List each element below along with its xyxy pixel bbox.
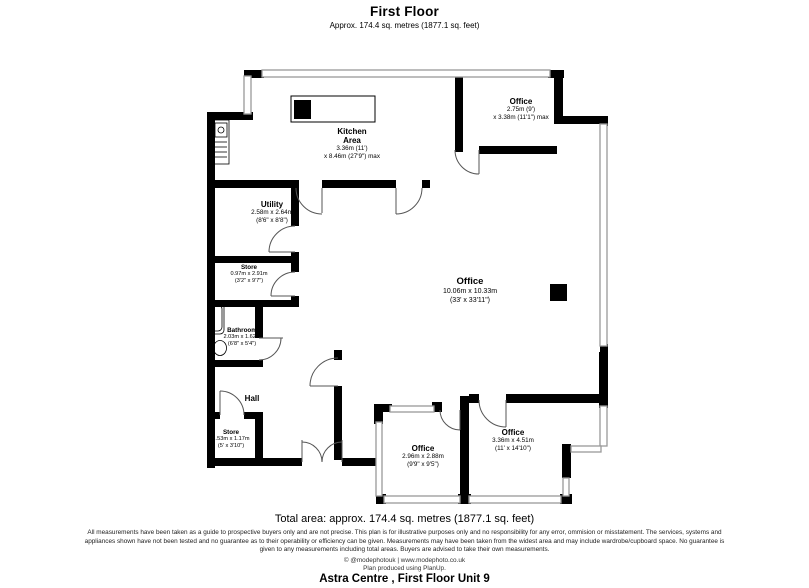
floorplan-page: First Floor Approx. 174.4 sq. metres (18… <box>0 0 809 588</box>
room-name: Utility <box>251 200 293 209</box>
room-label-office-bottom-right: Office 3.36m x 4.51m (11' x 14'10") <box>492 428 534 453</box>
window <box>390 406 434 412</box>
room-dim: 0.97m x 2.91m <box>231 271 268 278</box>
door-office-bottom-middle <box>440 410 460 430</box>
room-label-office-bottom-middle: Office 2.96m x 2.88m (9'9" x 9'5") <box>402 444 444 469</box>
room-dim: 3.36m (11') <box>324 145 380 153</box>
room-dim: 1.53m x 1.17m <box>213 436 250 443</box>
room-name: Store <box>231 264 268 271</box>
door-store-upper <box>271 272 295 296</box>
room-label-store-upper: Store 0.97m x 2.91m (3'2" x 9'7") <box>231 264 268 285</box>
room-label-store-lower: Store 1.53m x 1.17m (5' x 3'10") <box>213 429 250 450</box>
door-hall-upper <box>310 358 338 386</box>
room-name: Bathroom <box>224 327 261 334</box>
window <box>600 406 607 446</box>
room-name: Kitchen <box>324 127 380 136</box>
kitchen-counter <box>291 96 375 122</box>
sink-icon <box>213 120 229 164</box>
room-dim: (9'9" x 9'5") <box>402 461 444 469</box>
disclaimer-text: All measurements have been taken as a gu… <box>80 529 730 555</box>
window <box>376 422 382 496</box>
floorplan-drawing <box>0 0 809 588</box>
room-name: Office <box>492 428 534 437</box>
room-dim: x 3.38m (11'1") max <box>493 114 548 122</box>
room-name: Office <box>402 444 444 453</box>
door-utility <box>269 226 295 252</box>
room-dim: (5' x 3'10") <box>213 443 250 450</box>
room-dim: (8'6" x 8'8") <box>251 217 293 225</box>
room-name: Area <box>324 136 380 145</box>
window <box>262 70 550 77</box>
planup-credit: Plan produced using PlanUp. <box>0 565 809 572</box>
room-name: Store <box>213 429 250 436</box>
room-dim: 2.58m x 2.64m <box>251 209 293 217</box>
door-office-bottom-right <box>479 400 506 427</box>
room-dim: 2.03m x 1.62m <box>224 334 261 341</box>
structural-column <box>550 284 567 301</box>
photographer-credit: © @modephotouk | www.modephoto.co.uk <box>0 557 809 564</box>
room-dim: x 8.46m (27'9") max <box>324 153 380 161</box>
window <box>600 124 607 346</box>
window <box>571 446 601 452</box>
room-dim: (6'8" x 5'4") <box>224 341 261 348</box>
room-label-bathroom: Bathroom 2.03m x 1.62m (6'8" x 5'4") <box>224 327 261 348</box>
room-label-office-top-right: Office 2.75m (9') x 3.38m (11'1") max <box>493 97 548 122</box>
door-hall-double-left <box>302 440 322 462</box>
door-office-top-right <box>455 150 479 174</box>
walls-layer <box>207 70 608 504</box>
room-name: Office <box>443 277 497 288</box>
room-dim: 3.36m x 4.51m <box>492 437 534 445</box>
room-dim: (3'2" x 9'7") <box>231 278 268 285</box>
kitchen-island-icon <box>294 100 311 119</box>
door-kitchen <box>296 188 322 214</box>
room-dim: 2.96m x 2.88m <box>402 453 444 461</box>
window <box>563 478 569 496</box>
room-label-hall: Hall <box>245 394 260 403</box>
room-dim: 2.75m (9') <box>493 106 548 114</box>
room-name: Hall <box>245 394 260 403</box>
room-label-kitchen: Kitchen Area 3.36m (11') x 8.46m (27'9")… <box>324 127 380 161</box>
room-dim: 10.06m x 10.33m <box>443 288 497 297</box>
total-area-text: Total area: approx. 174.4 sq. metres (18… <box>0 513 809 525</box>
window <box>244 76 251 114</box>
property-title: Astra Centre , First Floor Unit 9 <box>0 573 809 585</box>
window <box>469 496 561 503</box>
room-label-utility: Utility 2.58m x 2.64m (8'6" x 8'8") <box>251 200 293 225</box>
room-label-office-main: Office 10.06m x 10.33m (33' x 33'11") <box>443 277 497 305</box>
room-name: Office <box>493 97 548 106</box>
door-corridor <box>396 188 422 214</box>
door-bathroom <box>259 338 283 360</box>
window <box>384 496 460 503</box>
room-dim: (11' x 14'10") <box>492 445 534 453</box>
room-dim: (33' x 33'11") <box>443 297 497 306</box>
door-store-lower <box>220 391 244 415</box>
